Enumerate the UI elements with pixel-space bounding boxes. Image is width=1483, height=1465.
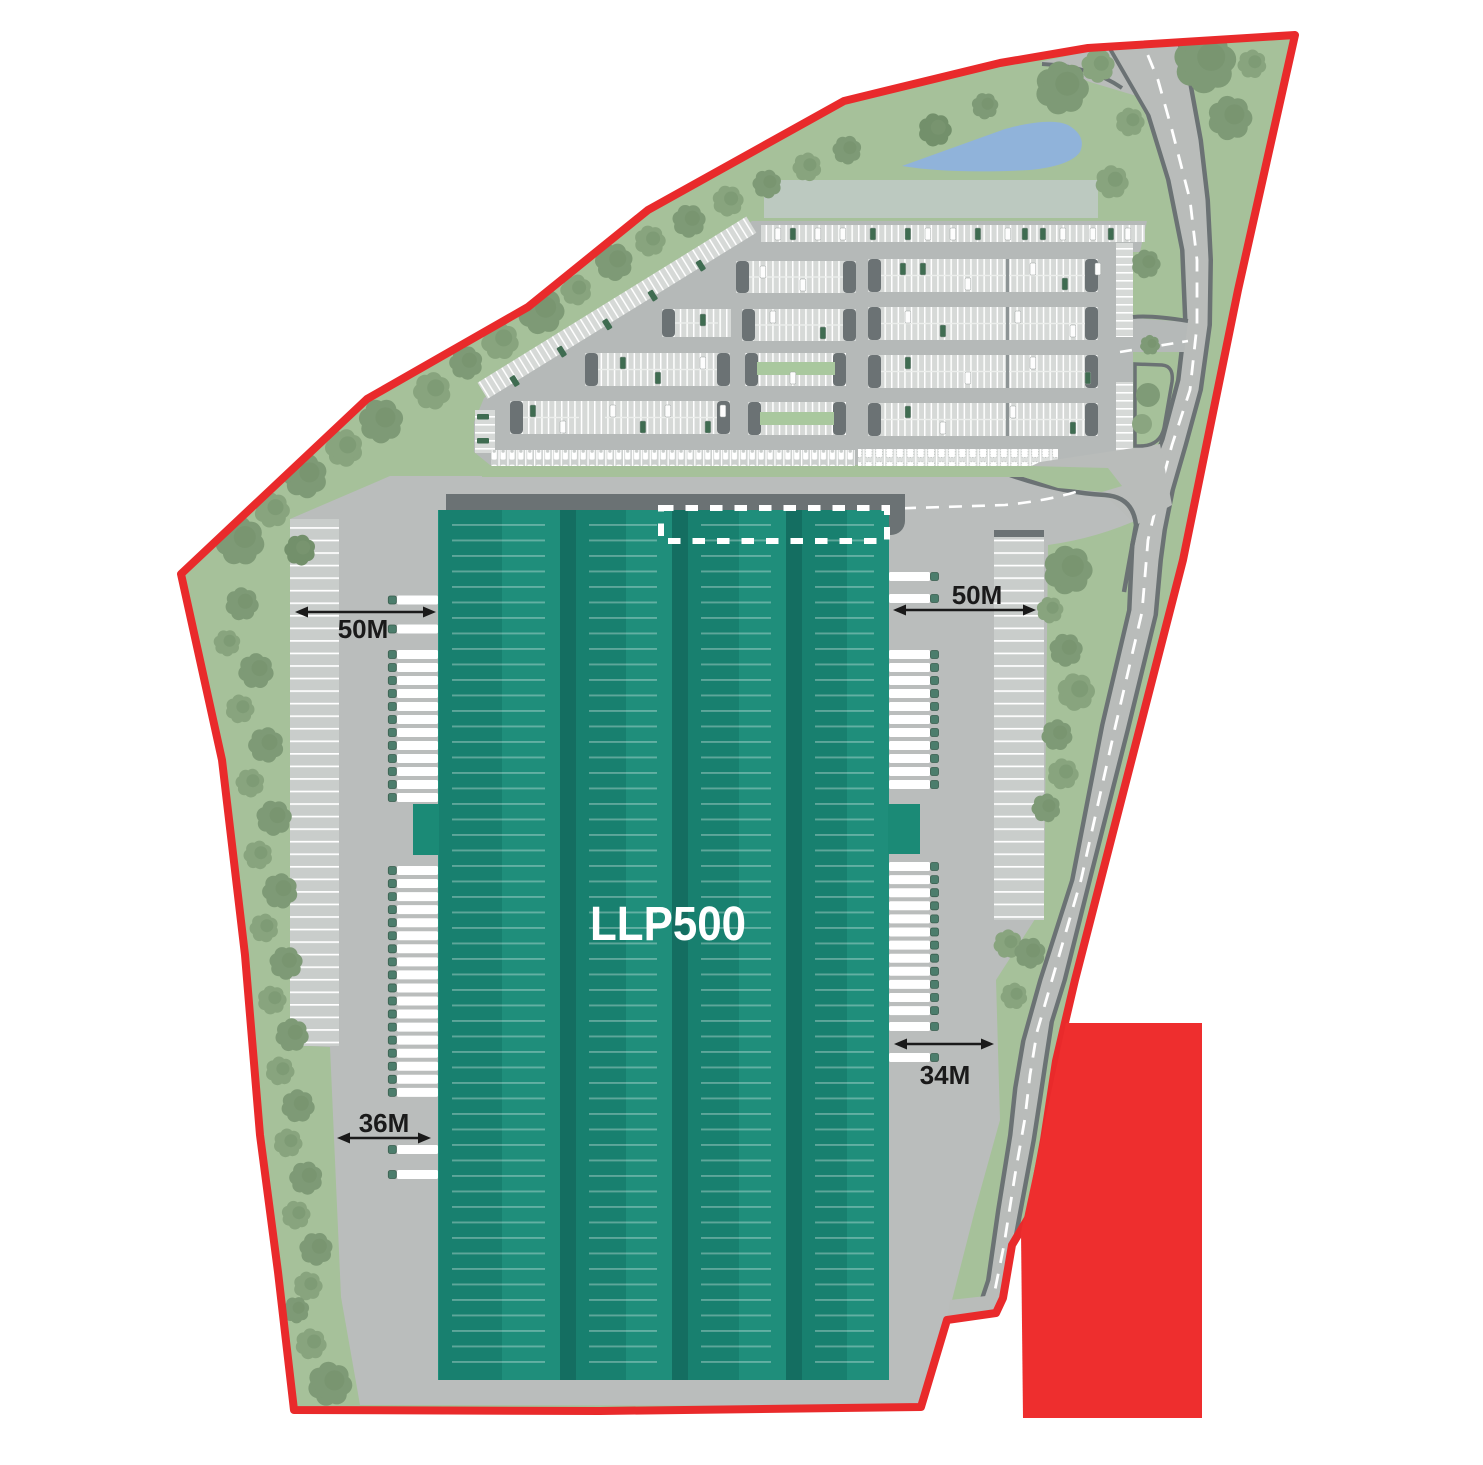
svg-text:50M: 50M [952, 580, 1003, 610]
svg-text:34M: 34M [920, 1060, 971, 1090]
svg-text:50M: 50M [338, 614, 389, 644]
svg-text:LLP500: LLP500 [590, 898, 746, 951]
svg-text:36M: 36M [359, 1108, 410, 1138]
